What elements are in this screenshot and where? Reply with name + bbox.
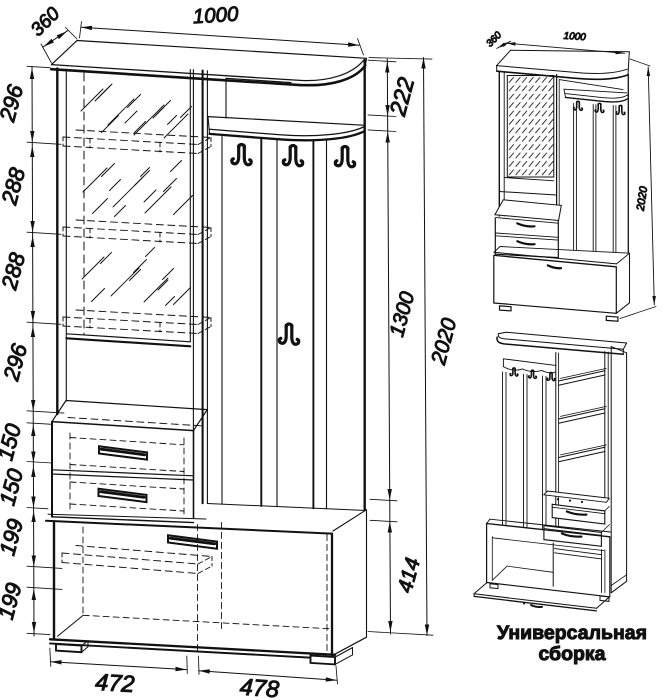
svg-text:478: 478 (239, 674, 280, 700)
svg-text:1000: 1000 (192, 3, 240, 29)
svg-text:сборка: сборка (538, 643, 605, 665)
svg-text:Универсальная: Универсальная (497, 622, 647, 644)
svg-text:472: 472 (95, 669, 136, 697)
svg-text:1000: 1000 (563, 31, 586, 44)
